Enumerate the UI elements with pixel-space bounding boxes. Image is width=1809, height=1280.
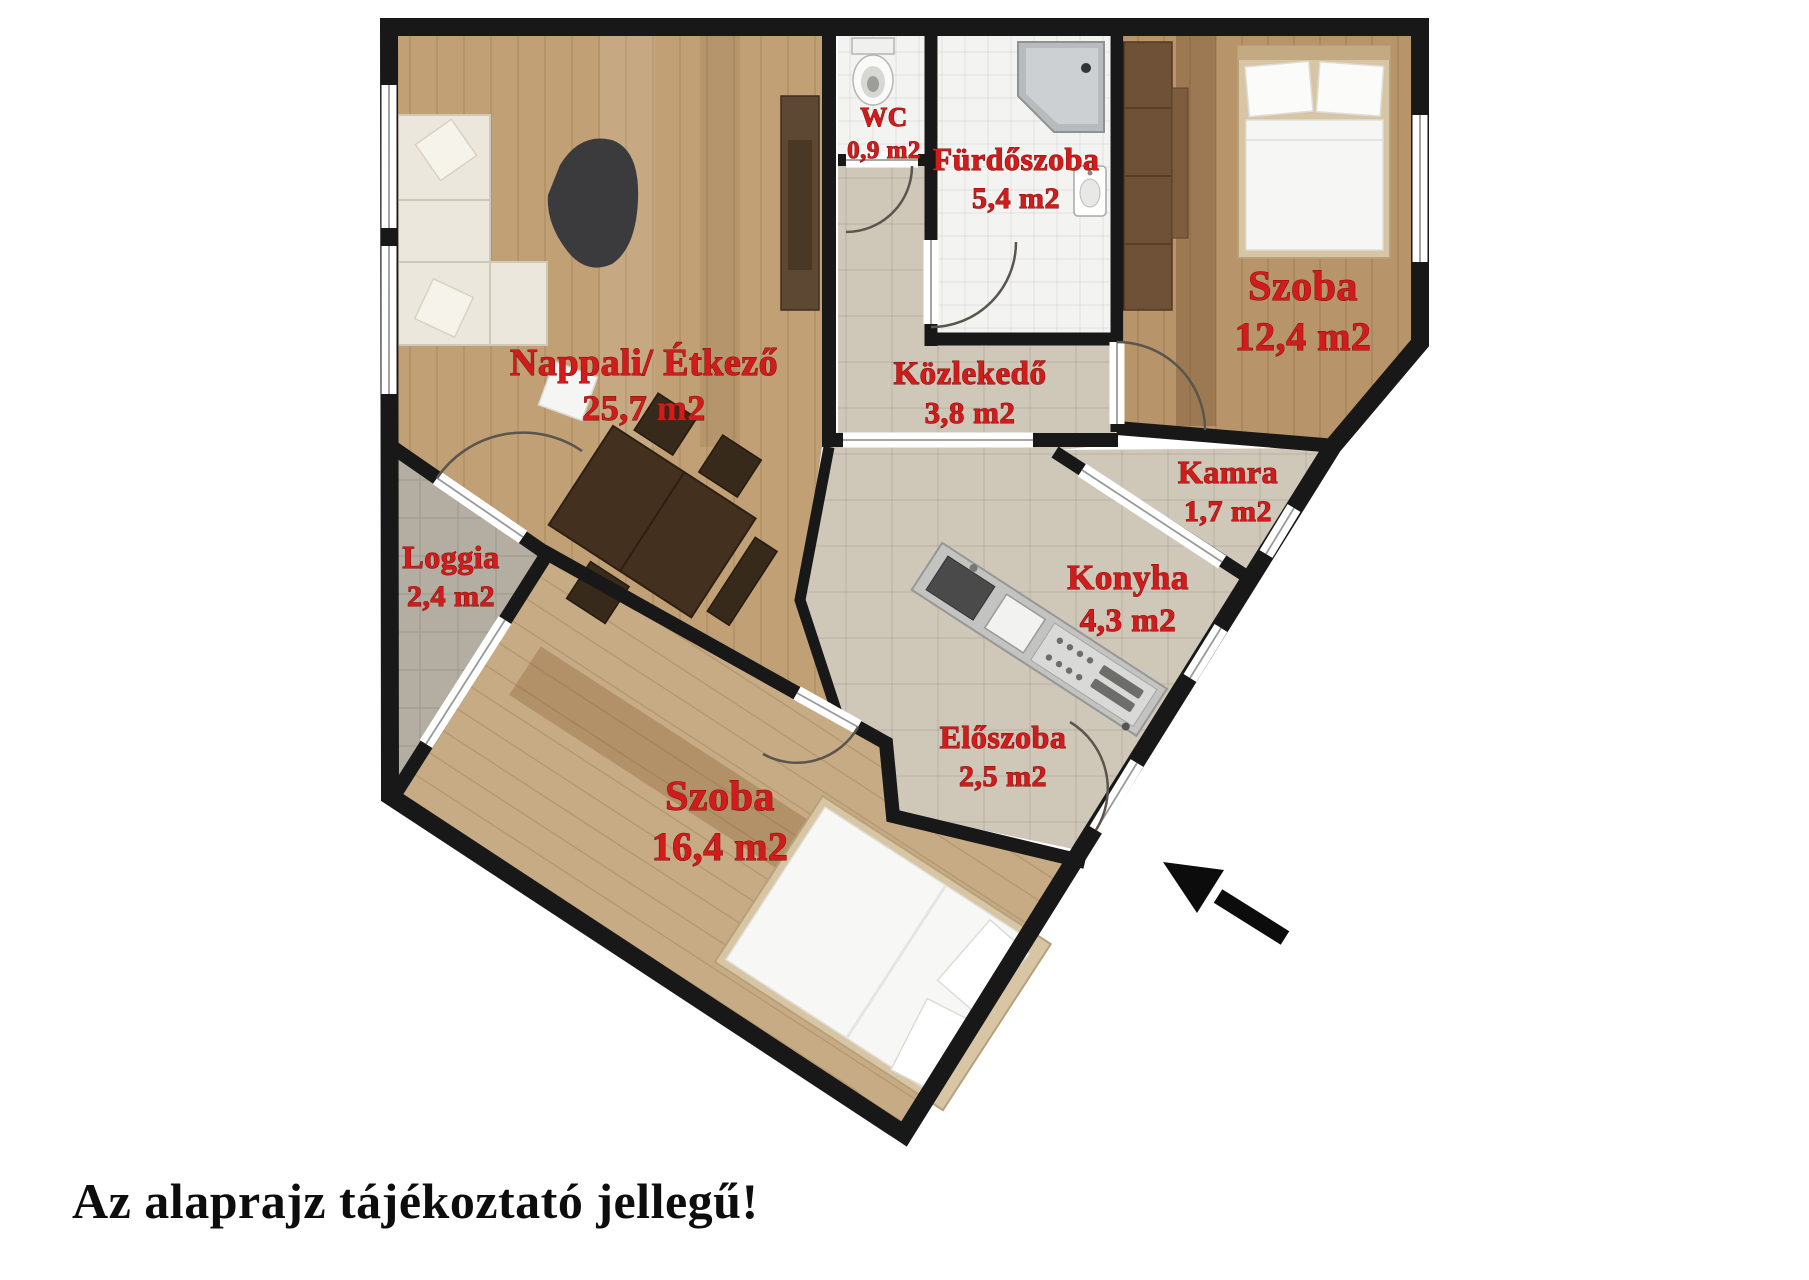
room-label-konyha-name: Konyha (1067, 558, 1189, 597)
room-label-furdoszoba-name: Fürdőszoba (933, 141, 1100, 177)
room-label-wc-name: WC (860, 102, 908, 132)
room-label-eloszoba-area: 2,5 m2 (959, 760, 1047, 793)
room-label-eloszoba-name: Előszoba (940, 719, 1067, 755)
floor-plan-page: Nappali/ Étkező25,7 m2WC0,9 m2Fürdőszoba… (0, 0, 1809, 1280)
room-label-furdoszoba-area: 5,4 m2 (972, 182, 1060, 215)
room-label-szoba-also-name: Szoba (665, 774, 775, 820)
room-label-konyha-area: 4,3 m2 (1080, 603, 1177, 639)
room-label-wc-area: 0,9 m2 (847, 137, 921, 164)
bed-top (1238, 46, 1390, 258)
room-label-nappali-area: 25,7 m2 (582, 388, 706, 428)
room-label-nappali-name: Nappali/ Étkező (510, 342, 778, 384)
disclaimer-text: Az alaprajz tájékoztató jellegű! (72, 1172, 759, 1230)
room-label-kamra-name: Kamra (1178, 454, 1278, 490)
room-label-szoba-felso-area: 12,4 m2 (1235, 314, 1372, 359)
toilet (852, 38, 894, 105)
room-label-loggia-area: 2,4 m2 (407, 580, 495, 613)
room-label-kozlekedo-area: 3,8 m2 (925, 395, 1016, 430)
room-label-kamra-area: 1,7 m2 (1184, 495, 1272, 528)
room-label-szoba-also-area: 16,4 m2 (652, 824, 789, 869)
tv-cabinet (781, 96, 819, 310)
entrance-arrow-icon (1163, 862, 1285, 938)
room-label-kozlekedo-name: Közlekedő (894, 356, 1047, 392)
floor-plan-canvas: Nappali/ Étkező25,7 m2WC0,9 m2Fürdőszoba… (0, 0, 1809, 1280)
room-label-loggia-name: Loggia (402, 539, 499, 575)
room-label-szoba-felso-name: Szoba (1248, 264, 1358, 310)
